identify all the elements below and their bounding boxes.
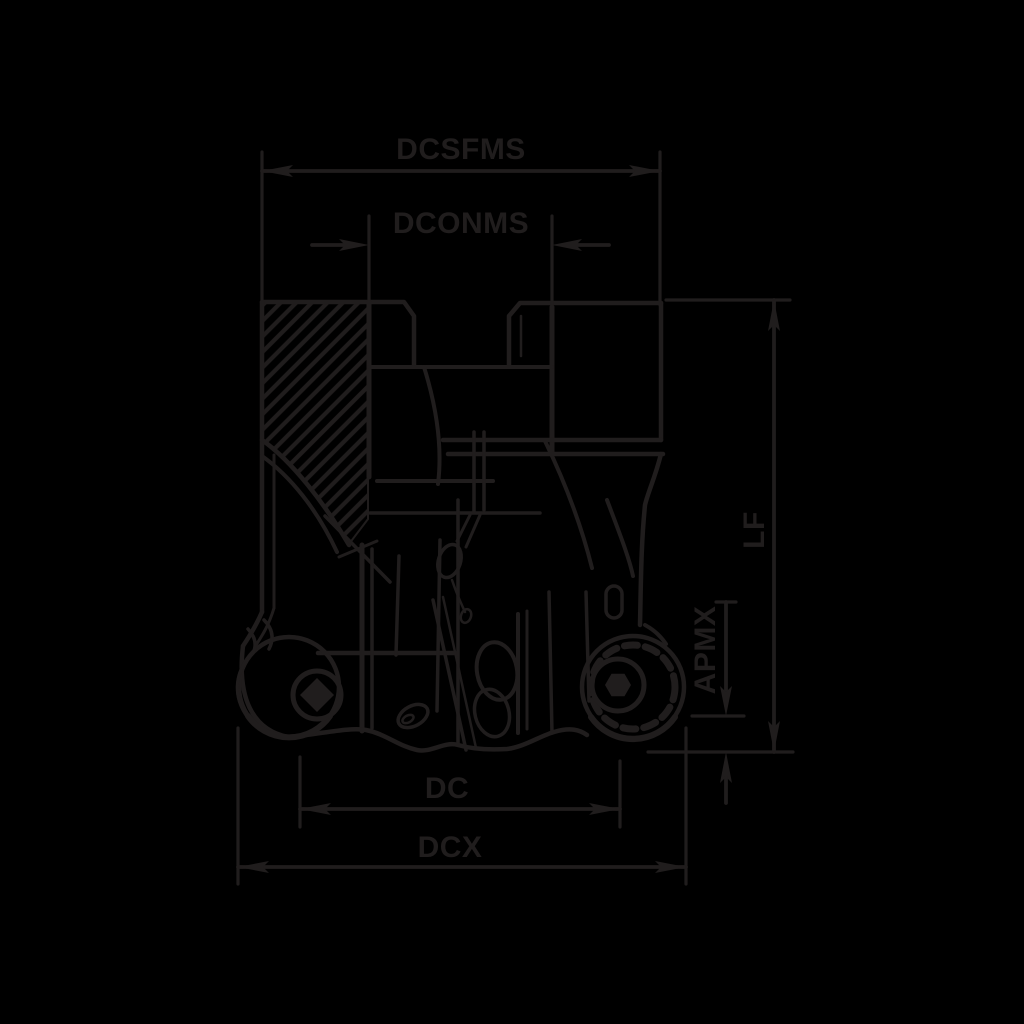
insert-serration: [591, 645, 675, 729]
locating-pin: [606, 586, 622, 618]
dim-label-dcsfms: DCSFMS: [396, 133, 526, 166]
dimension-dc: DC: [300, 757, 620, 827]
dimension-apmx: APMX: [689, 602, 744, 803]
technical-drawing: DCSFMS DCONMS LF APMX DC: [0, 0, 1024, 1024]
right-insert: [582, 636, 684, 739]
dimension-dconms: DCONMS: [312, 207, 609, 305]
dim-label-dc: DC: [425, 772, 469, 805]
right-screw-torx-icon: [605, 674, 631, 697]
dim-label-apmx: APMX: [689, 606, 722, 695]
left-screw-socket-icon: [300, 678, 334, 712]
section-hatch: [262, 302, 368, 544]
dim-label-dcx: DCX: [418, 831, 483, 864]
left-insert: [237, 620, 341, 737]
cutter-body: [242, 302, 666, 750]
dim-label-dconms: DCONMS: [393, 207, 529, 240]
dim-label-lf: LF: [738, 511, 771, 549]
